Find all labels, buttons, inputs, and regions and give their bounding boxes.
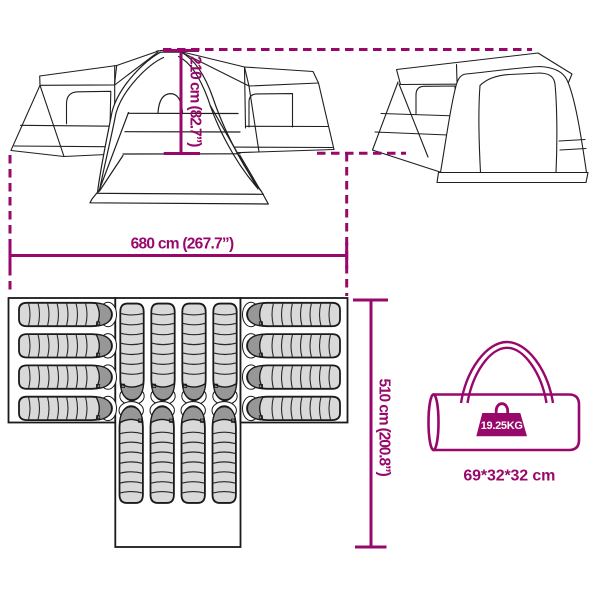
svg-text:510 cm (200.8”): 510 cm (200.8”) bbox=[376, 379, 393, 477]
svg-text:19.25KG: 19.25KG bbox=[481, 420, 523, 432]
svg-text:210 cm (82.7”): 210 cm (82.7”) bbox=[187, 56, 204, 147]
svg-text:69*32*32 cm: 69*32*32 cm bbox=[463, 468, 555, 485]
svg-text:680 cm (267.7”): 680 cm (267.7”) bbox=[131, 236, 234, 253]
